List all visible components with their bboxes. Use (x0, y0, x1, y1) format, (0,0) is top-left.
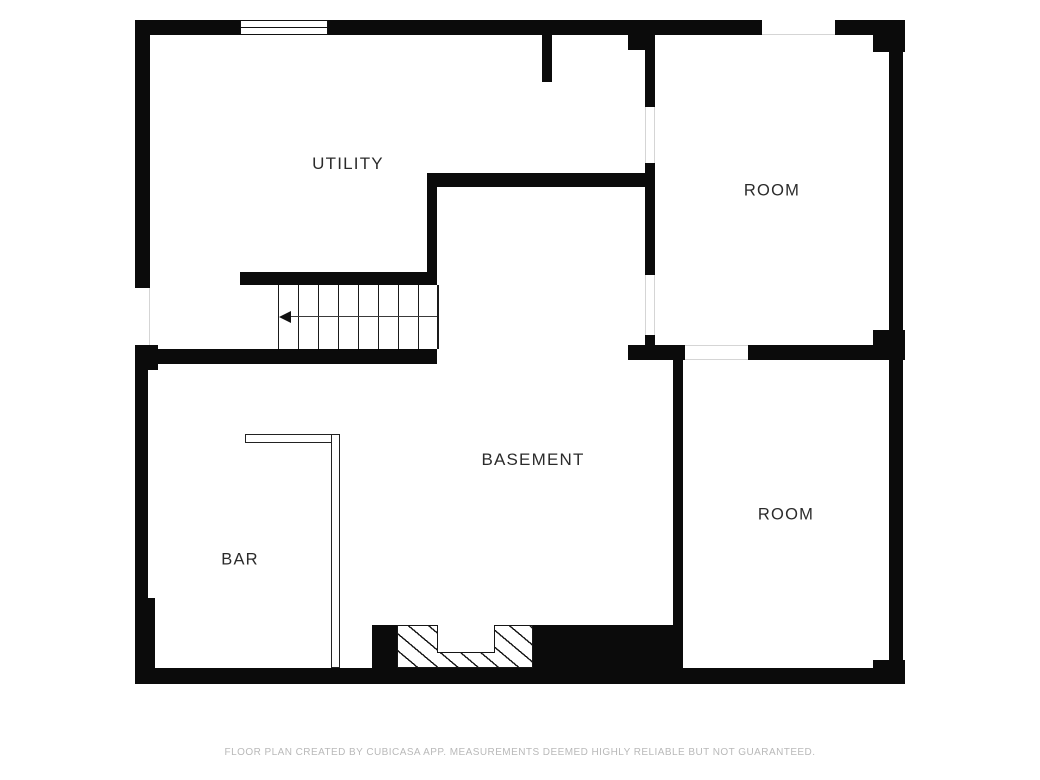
mid-right-wall-right (748, 345, 905, 360)
room-label-basement: BASEMENT (481, 450, 584, 470)
basement-room-divider (673, 350, 683, 684)
stair-tread-line (437, 285, 438, 349)
utility-room-wall-middle (645, 163, 655, 275)
chimney-flue-stub (542, 35, 552, 82)
stairs-bottom-wall (148, 349, 437, 364)
window-top-wall (240, 20, 328, 35)
staircase (278, 285, 437, 349)
utility-hall-wall (427, 173, 645, 187)
top-wall-left (135, 20, 240, 35)
bar-counter-side (331, 434, 340, 668)
room-label-room-upper: ROOM (744, 182, 800, 201)
left-wall-upper (135, 20, 150, 288)
opening-hall-to-room (645, 275, 655, 335)
room-label-room-lower: ROOM (758, 506, 814, 525)
hall-wall-vertical (427, 173, 437, 285)
floor-plan: UTILITY ROOM BASEMENT BAR ROOM FLOOR PLA… (0, 0, 1040, 780)
left-wall-lower (135, 598, 155, 684)
room-label-utility: UTILITY (312, 154, 384, 174)
stair-direction-arrow-icon (279, 311, 291, 323)
opening-top-wall (762, 20, 835, 35)
fireplace-chimney-block (533, 625, 673, 684)
bottom-wall (135, 668, 905, 684)
door-utility-to-room (645, 107, 655, 163)
bar-counter-front (245, 434, 332, 443)
utility-room-wall-upper (645, 48, 655, 107)
top-right-corner-block (873, 32, 905, 52)
room-label-bar: BAR (221, 551, 259, 570)
door-basement-to-room (685, 345, 748, 360)
stairs-top-wall (240, 272, 437, 285)
opening-left-wall (135, 288, 150, 345)
right-wall-upper (889, 52, 903, 330)
top-wall-middle (328, 20, 762, 35)
stair-direction-line (290, 316, 437, 317)
fireplace-left-block (372, 625, 397, 672)
window-glass-line (241, 27, 327, 28)
left-wall-middle (135, 370, 148, 598)
disclaimer-text: FLOOR PLAN CREATED BY CUBICASA APP. MEAS… (0, 747, 1040, 758)
fireplace-firebox (437, 625, 495, 653)
right-wall-lower (889, 360, 903, 660)
